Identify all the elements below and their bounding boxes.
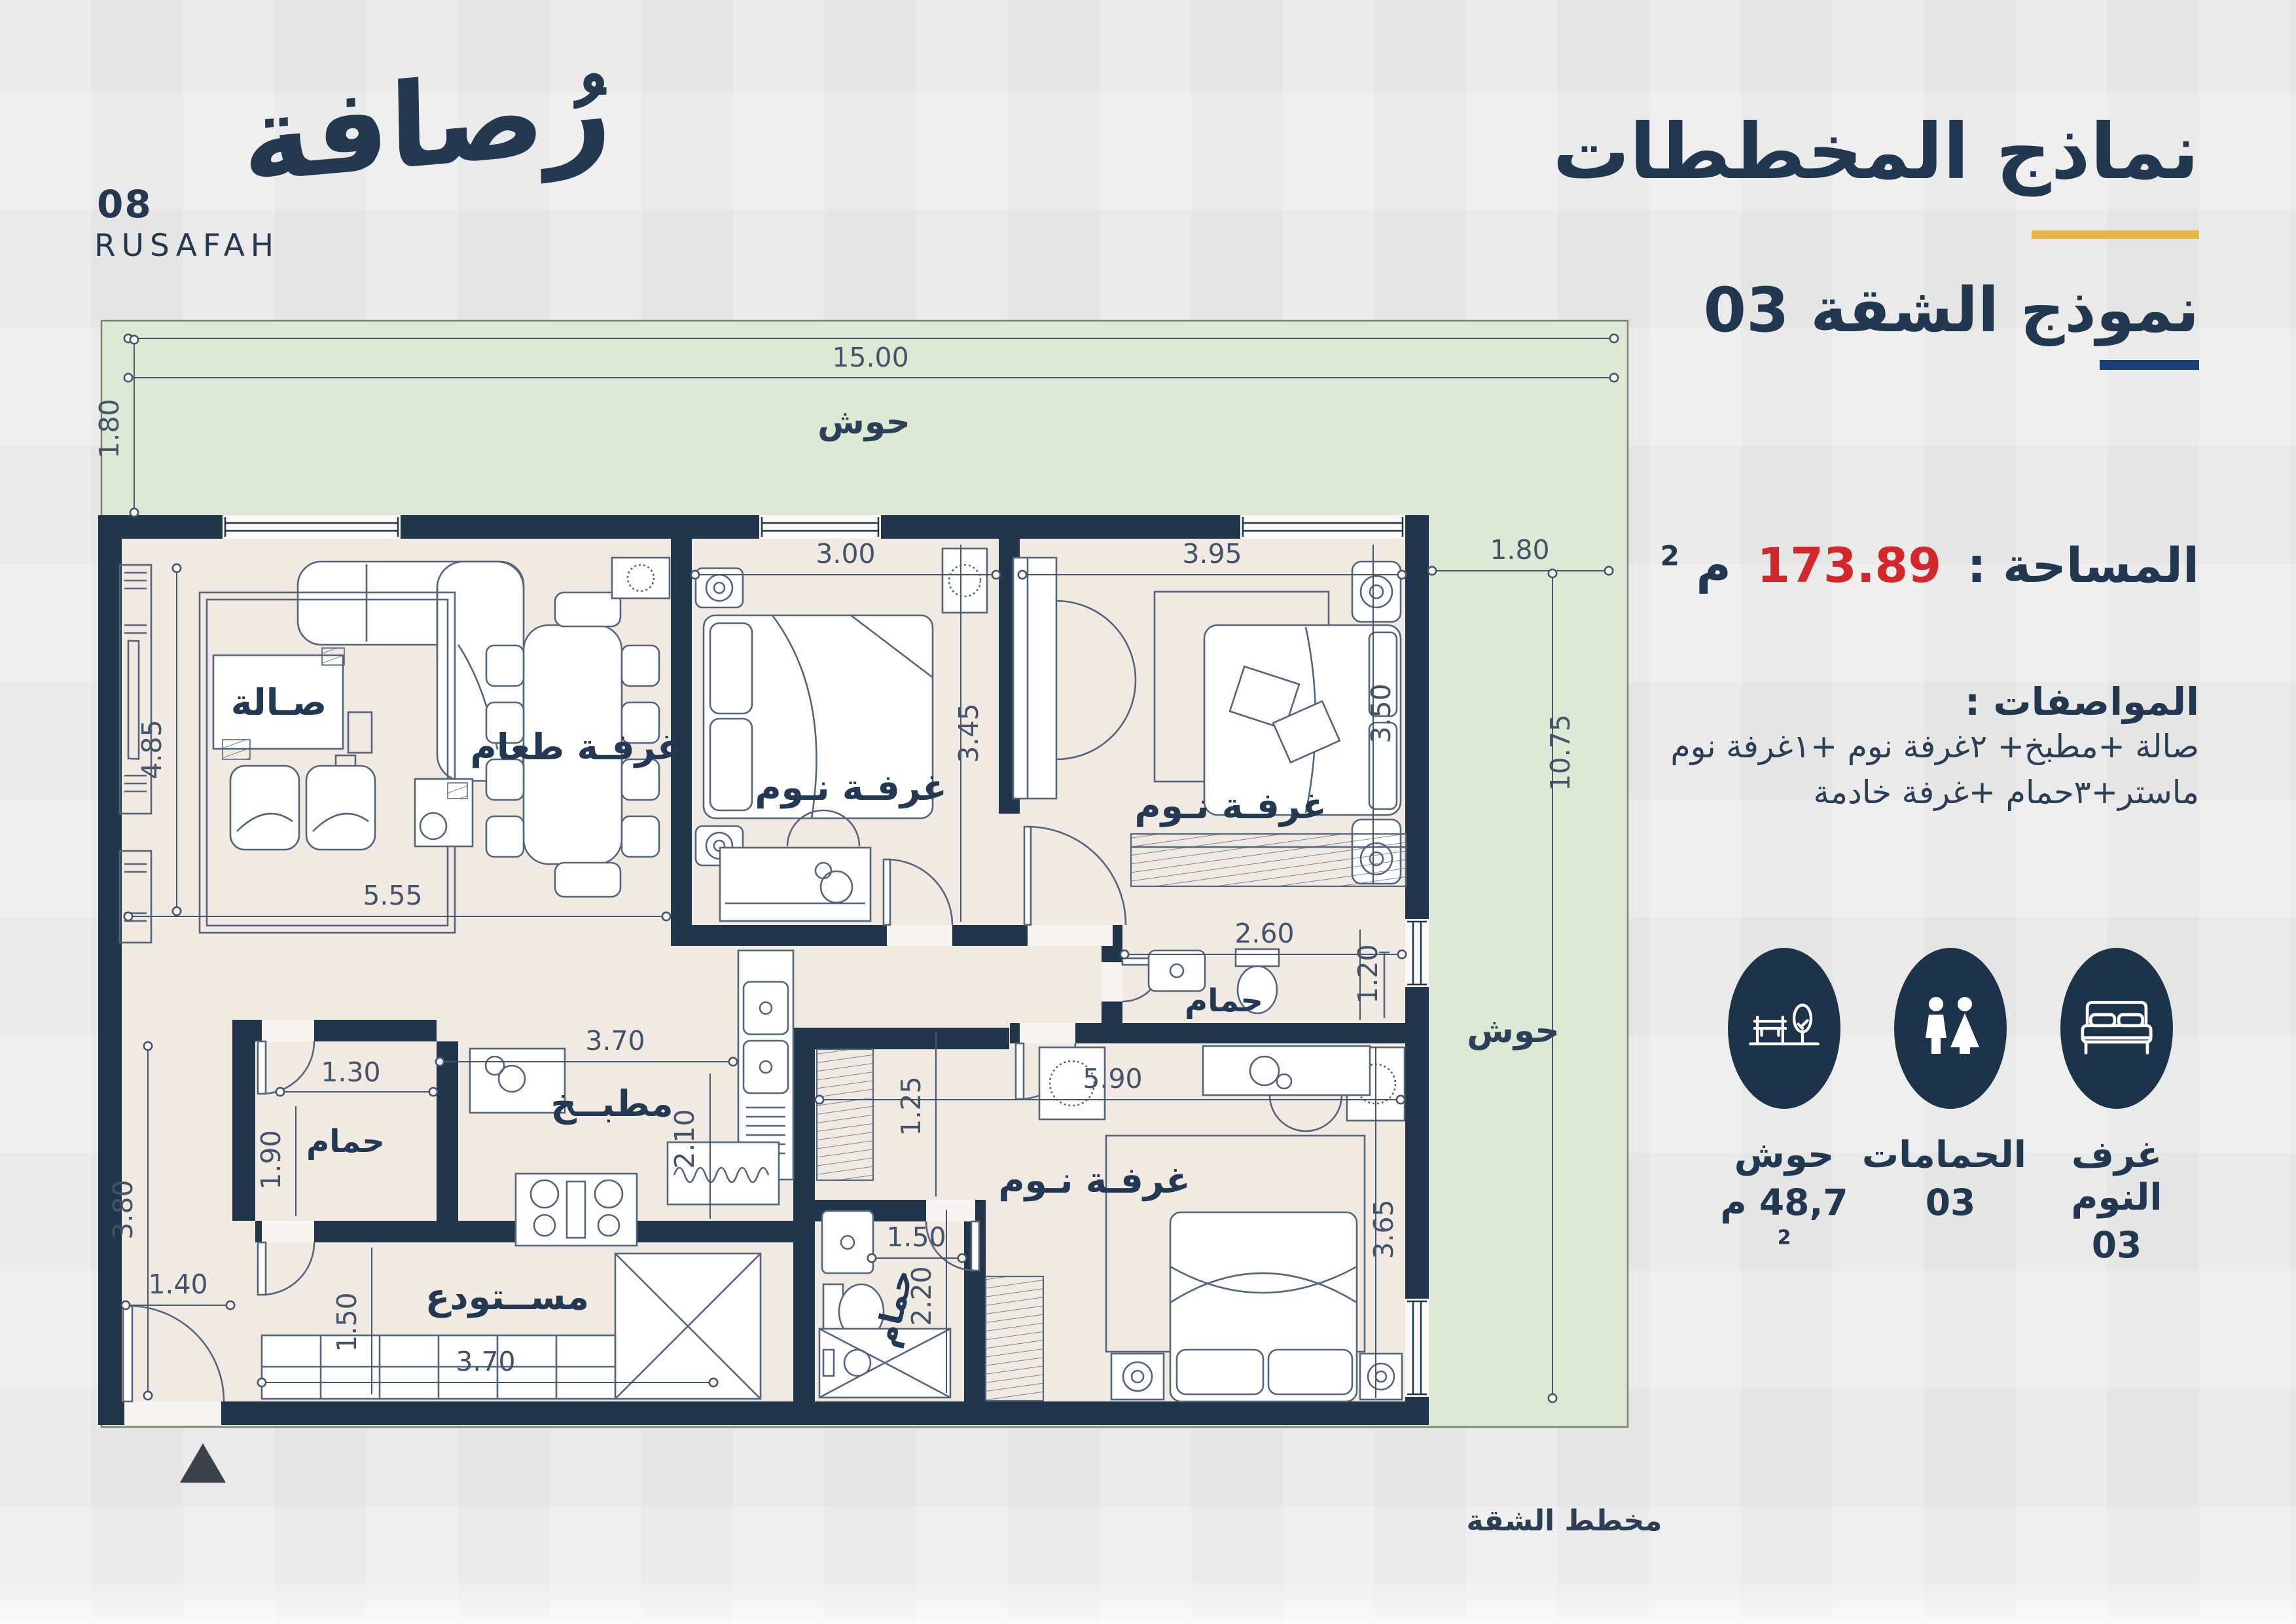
dim-master-corr-h: 1.25	[895, 1076, 927, 1136]
label-bath-left: حمام	[306, 1123, 385, 1160]
specs-line-2: ماستر+٣حمام +غرفة خادمة	[1814, 774, 2199, 811]
specs-heading: المواصفات :	[1965, 679, 2199, 724]
dim-hall-w: 5.55	[363, 880, 422, 911]
dim-storage-w: 3.70	[456, 1346, 515, 1377]
label-courtyard-top: حوش	[817, 403, 910, 442]
yard-icon	[1748, 997, 1821, 1060]
dim-bed2-w: 3.95	[1182, 538, 1242, 569]
area-unit: م	[1696, 538, 1731, 594]
wc-icon	[1914, 992, 1986, 1064]
stats-row: غرف النوم 03 الحمامات 03	[1708, 948, 2193, 1266]
dim-kitchen-w: 3.70	[585, 1025, 645, 1056]
dim-master-w: 5.90	[1083, 1063, 1142, 1094]
dim-master-h: 3.65	[1368, 1199, 1399, 1259]
dim-site-top-depth: 1.80	[94, 399, 125, 458]
bed-icon	[2079, 997, 2155, 1060]
window-bath-mid	[1405, 919, 1429, 987]
dim-bath-mid-h: 1.20	[1352, 944, 1384, 1003]
logo-calligraphy: رُصافة	[242, 44, 550, 211]
area-label: المساحة :	[1967, 538, 2199, 594]
dim-bath-btm-w: 1.50	[886, 1221, 946, 1253]
floor-plan-svg: 15.00 1.80 1.80 10.75 4.85 5.55 3.00 3.4…	[92, 308, 1662, 1571]
info-panel: نماذج المخططات نموذج الشقة 03 المساحة : …	[1576, 0, 2296, 1375]
label-dining: غرفـة طعام	[471, 726, 682, 768]
plan-caption: مخطط الشقة	[1467, 1504, 1662, 1538]
stat-bathrooms-value: 03	[1874, 1182, 2026, 1223]
area-value: 173.89	[1748, 538, 1950, 594]
label-kitchen: مطبــخ	[550, 1083, 673, 1125]
model-subtitle: نموذج الشقة 03	[1704, 275, 2199, 346]
dim-hall-low-h: 3.80	[107, 1180, 139, 1239]
dim-entry-w: 1.40	[148, 1269, 207, 1300]
gold-underline	[2032, 230, 2199, 239]
page-title: نماذج المخططات	[1552, 107, 2199, 196]
dim-bath-left-h: 1.90	[255, 1130, 287, 1189]
label-bedroom1: غرفـة نـوم	[755, 767, 946, 809]
dim-side-width: 1.80	[1490, 534, 1549, 566]
rusafah-logo: رُصافة 08 RUSAFAH	[92, 52, 511, 301]
area-row: المساحة : 173.89 م 2	[1660, 538, 2199, 594]
navy-underline	[2100, 360, 2199, 370]
window-bedroom1	[759, 515, 881, 539]
logo-number: 08	[97, 182, 152, 226]
dim-bath-left-w: 1.30	[321, 1056, 380, 1088]
stat-bathrooms-label: الحمامات	[1874, 1134, 2026, 1176]
stat-bedrooms: غرف النوم 03	[2041, 948, 2193, 1266]
window-hall	[223, 515, 401, 539]
window-master	[1405, 1299, 1429, 1397]
dim-bed1-w: 3.00	[816, 538, 875, 569]
dim-hall-h: 4.85	[136, 719, 168, 779]
dim-bath-mid-w: 2.60	[1234, 918, 1294, 949]
label-bath-mid: حمام	[1185, 983, 1263, 1019]
dim-bed1-h: 3.45	[953, 703, 984, 763]
entry-arrow	[180, 1443, 226, 1483]
label-hall: صـالة	[231, 681, 327, 723]
dim-kitchen-h: 2.10	[669, 1109, 700, 1168]
dim-site-width: 15.00	[832, 342, 908, 373]
dim-side-height: 10.75	[1545, 714, 1576, 791]
logo-wordmark: RUSAFAH	[94, 228, 279, 264]
stat-bedrooms-value: 03	[2041, 1224, 2193, 1266]
label-master: غرفـة نـوم	[998, 1159, 1190, 1202]
area-superscript: 2	[1660, 540, 1679, 572]
dim-bed2-h: 3.50	[1365, 683, 1397, 743]
stat-bedrooms-label: غرف النوم	[2041, 1134, 2193, 1219]
label-storage: مســتودع	[425, 1276, 589, 1318]
stat-bathrooms: الحمامات 03	[1874, 948, 2026, 1266]
label-bedroom2: غرفـة نـوم	[1134, 785, 1326, 827]
poster-page: رُصافة 08 RUSAFAH نماذج المخططات نموذج ا…	[0, 0, 2296, 1624]
window-bedroom2	[1240, 515, 1405, 539]
stat-yard-value: 48,7 م 2	[1708, 1182, 1860, 1265]
specs-line-1: صالة +مطبخ+ ٢غرفة نوم +١غرفة نوم	[1670, 728, 2199, 765]
stat-yard: حوش 48,7 م 2	[1708, 948, 1860, 1266]
floor-plan: 15.00 1.80 1.80 10.75 4.85 5.55 3.00 3.4…	[92, 308, 1662, 1571]
stat-yard-label: حوش	[1708, 1134, 1860, 1176]
dim-storage-h: 1.50	[331, 1292, 363, 1352]
label-courtyard-right: حوش	[1467, 1011, 1560, 1051]
